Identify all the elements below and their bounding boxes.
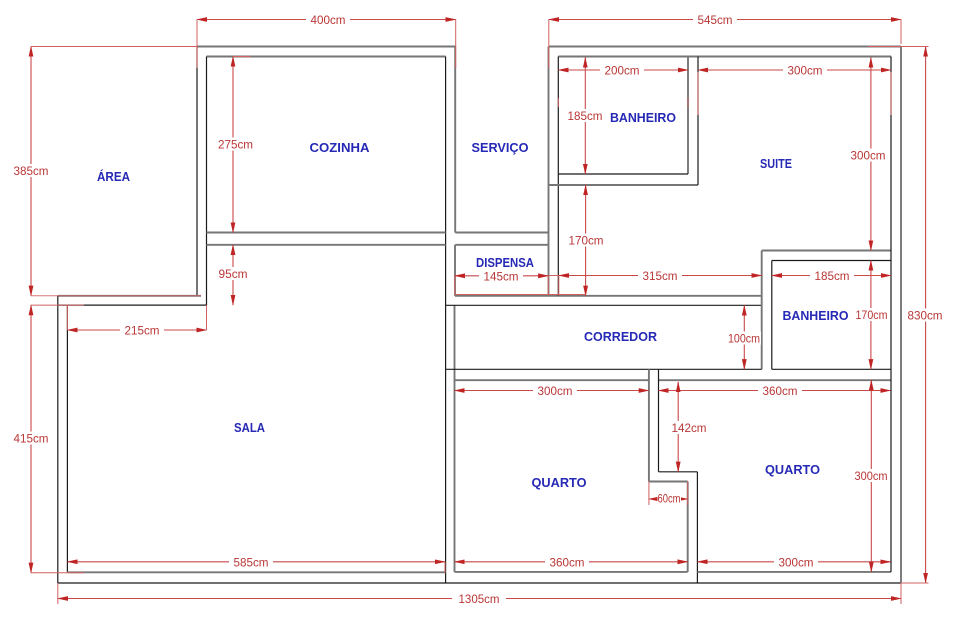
svg-text:BANHEIRO: BANHEIRO <box>610 110 676 125</box>
svg-text:360cm: 360cm <box>763 384 798 398</box>
svg-text:300cm: 300cm <box>788 64 823 78</box>
svg-text:1305cm: 1305cm <box>459 592 500 606</box>
svg-text:SERVIÇO: SERVIÇO <box>472 140 529 155</box>
svg-text:185cm: 185cm <box>568 109 603 123</box>
svg-text:QUARTO: QUARTO <box>532 475 587 490</box>
svg-text:275cm: 275cm <box>218 138 253 152</box>
svg-text:300cm: 300cm <box>538 384 573 398</box>
svg-text:170cm: 170cm <box>569 234 604 248</box>
svg-text:CORREDOR: CORREDOR <box>584 329 658 344</box>
svg-text:830cm: 830cm <box>908 309 943 323</box>
svg-text:100cm: 100cm <box>728 332 760 346</box>
svg-text:360cm: 360cm <box>550 555 585 569</box>
svg-text:200cm: 200cm <box>605 64 640 78</box>
svg-text:SALA: SALA <box>234 420 266 435</box>
svg-text:315cm: 315cm <box>643 269 678 283</box>
svg-text:DISPENSA: DISPENSA <box>476 255 535 270</box>
svg-text:585cm: 585cm <box>234 555 269 569</box>
svg-text:145cm: 145cm <box>484 269 519 283</box>
svg-text:142cm: 142cm <box>672 421 707 435</box>
svg-text:385cm: 385cm <box>14 164 49 178</box>
svg-text:QUARTO: QUARTO <box>765 462 820 477</box>
svg-text:60cm: 60cm <box>658 492 681 506</box>
svg-text:545cm: 545cm <box>698 13 733 27</box>
svg-text:300cm: 300cm <box>851 149 886 163</box>
svg-text:COZINHA: COZINHA <box>310 140 371 155</box>
svg-text:300cm: 300cm <box>855 469 888 483</box>
svg-text:170cm: 170cm <box>856 308 888 322</box>
svg-text:BANHEIRO: BANHEIRO <box>783 308 849 323</box>
svg-text:415cm: 415cm <box>14 432 49 446</box>
svg-text:300cm: 300cm <box>779 555 814 569</box>
svg-text:215cm: 215cm <box>125 324 160 338</box>
svg-text:185cm: 185cm <box>815 269 850 283</box>
svg-text:ÁREA: ÁREA <box>97 169 131 184</box>
svg-text:SUITE: SUITE <box>760 156 792 171</box>
svg-text:95cm: 95cm <box>219 267 248 281</box>
svg-text:400cm: 400cm <box>311 13 346 27</box>
